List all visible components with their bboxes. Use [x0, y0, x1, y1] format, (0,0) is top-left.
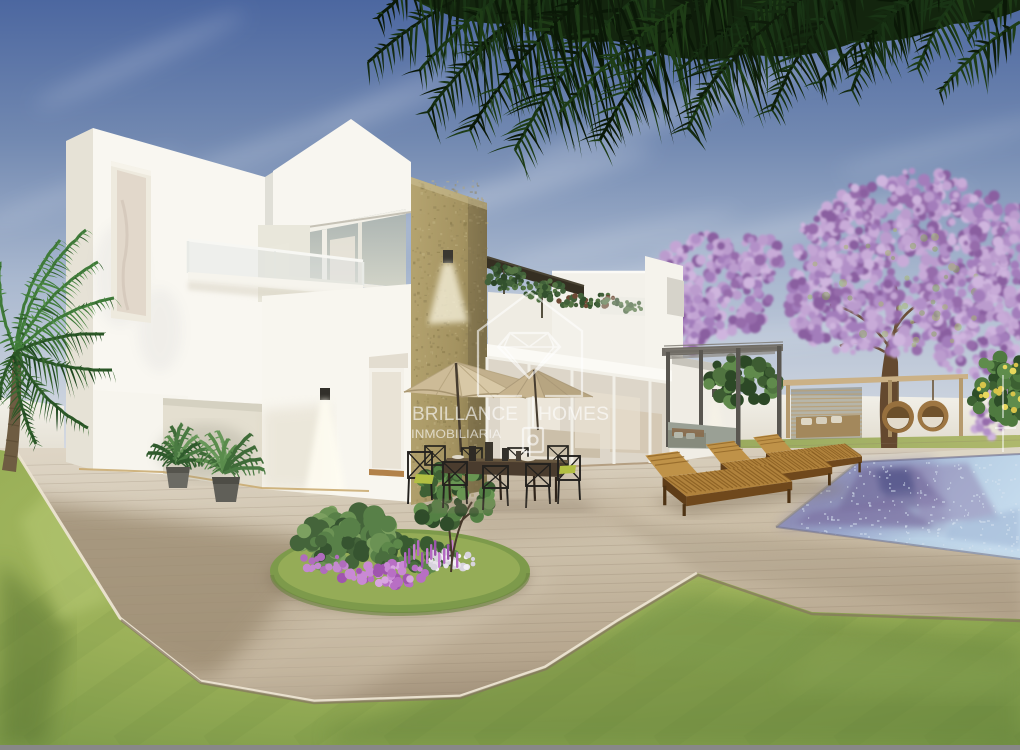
svg-text:INMOBILIARIA: INMOBILIARIA — [411, 429, 501, 441]
svg-text:BRILLANCE: BRILLANCE — [412, 404, 518, 425]
svg-text:HOMES: HOMES — [538, 404, 609, 425]
